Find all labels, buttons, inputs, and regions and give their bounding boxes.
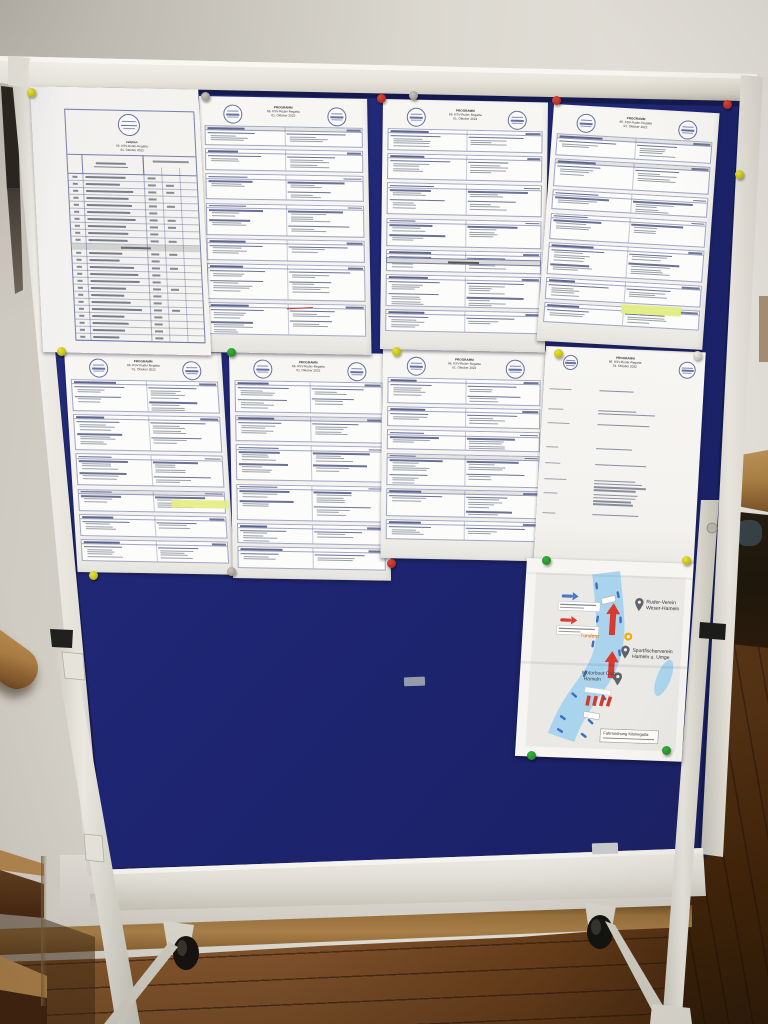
svg-text:Hameln u. Umge: Hameln u. Umge [632, 654, 670, 661]
svg-text:Weser-Hameln: Weser-Hameln [646, 605, 680, 612]
svg-text:Hameln: Hameln [583, 676, 601, 683]
svg-text:Tündern: Tündern [580, 633, 599, 640]
